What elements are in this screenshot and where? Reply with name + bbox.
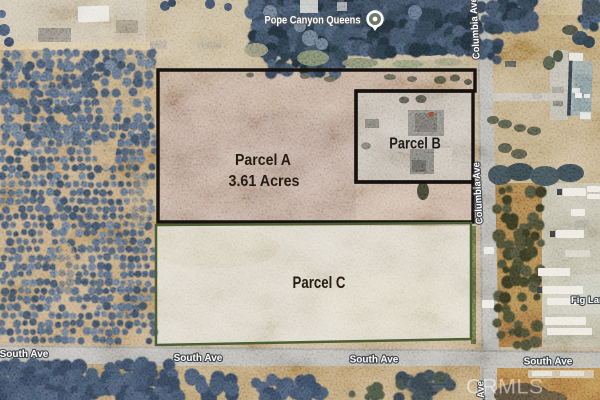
svg-text:CRMLS: CRMLS <box>466 375 544 399</box>
svg-text:South Ave: South Ave <box>174 353 223 364</box>
svg-text:Parcel B: Parcel B <box>389 136 441 153</box>
svg-text:Parcel C: Parcel C <box>293 274 346 292</box>
svg-text:Pope Canyon Queens: Pope Canyon Queens <box>265 15 361 27</box>
svg-text:South Ave: South Ave <box>524 357 573 368</box>
svg-text:3.61 Acres: 3.61 Acres <box>229 173 300 190</box>
svg-text:South Ave: South Ave <box>0 349 49 360</box>
svg-text:Parcel A: Parcel A <box>235 152 291 169</box>
svg-text:Fig Lane: Fig Lane <box>571 295 600 306</box>
svg-text:South Ave: South Ave <box>350 355 399 366</box>
